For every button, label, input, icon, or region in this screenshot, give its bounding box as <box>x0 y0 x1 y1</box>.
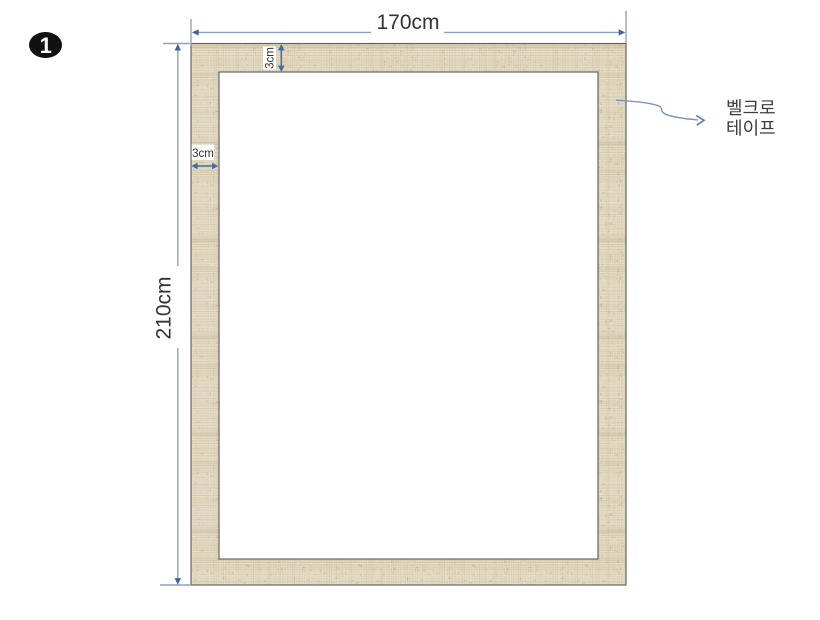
svg-text:1: 1 <box>40 33 52 58</box>
svg-text:170cm: 170cm <box>376 11 439 34</box>
svg-text:3cm: 3cm <box>265 47 277 69</box>
svg-text:210cm: 210cm <box>153 276 176 339</box>
svg-text:3cm: 3cm <box>192 148 214 160</box>
